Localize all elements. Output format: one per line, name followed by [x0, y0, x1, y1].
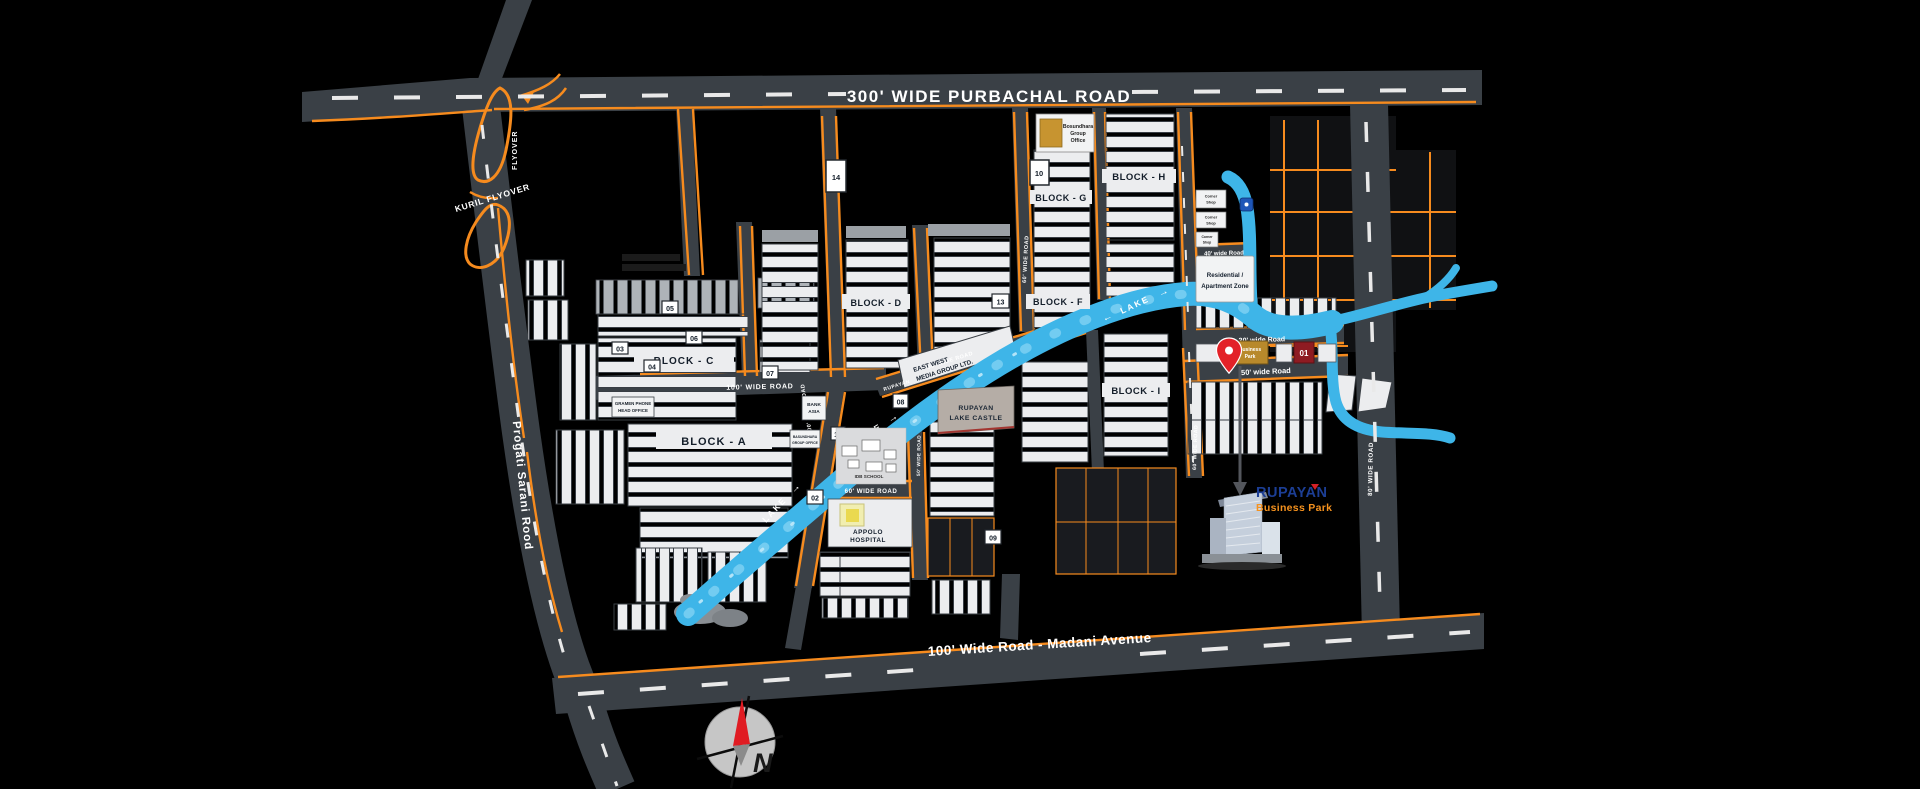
compass: N [697, 696, 783, 788]
block-i-label: BLOCK - I [1111, 386, 1160, 397]
bosundhara-label: Office [1071, 138, 1086, 144]
madani-stub-a [785, 586, 812, 650]
residential-zone: Residential / Apartment Zone [1196, 256, 1254, 302]
plot-08: 08 [897, 400, 905, 407]
block-c-label: BLOCK - C [654, 356, 715, 367]
madani-stub-b [1000, 574, 1020, 640]
bank-asia-label: BANK [807, 402, 821, 408]
residential-label: Residential / [1207, 272, 1244, 279]
hospital-label: APPOLO [853, 529, 883, 536]
purbachal-road-label: 300' WIDE PURBACHAL ROAD [847, 87, 1131, 106]
bosundhara-office: Bosundhara Group Office [1036, 114, 1094, 152]
corner-shops: Corner Shop Corner Shop Corner Shop [1196, 190, 1226, 247]
flyover-label: FLYOVER [512, 131, 519, 170]
rupayan-logo: RUPAYAN Business Park [1256, 484, 1332, 514]
basundhara-small-office: BASUNDHARA GROUP OFFICE [790, 430, 820, 448]
block-d-label: BLOCK - D [851, 298, 902, 308]
gramenphone-label: HEAD OFFICE [618, 408, 648, 413]
plot-10: 10 [1035, 169, 1043, 178]
school-area: IDB SCHOOL [836, 428, 906, 484]
corner-shop-label: Shop [1206, 201, 1216, 205]
map-canvas: BLOCK - A BLOCK - C BLOCK - D BLOCK - F … [0, 0, 1920, 789]
basundhara-small-label: BASUNDHARA [793, 435, 818, 439]
location-map: BLOCK - A BLOCK - C BLOCK - D BLOCK - F … [0, 0, 1920, 789]
corner-shop-label: Corner [1201, 235, 1213, 239]
logo-tagline: Business Park [1256, 502, 1332, 514]
landmark-icon [1240, 198, 1253, 211]
bosundhara-label: Bosundhara [1063, 124, 1093, 130]
road-80v-label: 80' WIDE ROAD [1367, 442, 1375, 496]
plot-02: 02 [811, 496, 819, 503]
gramenphone-label: GRAMEN PHONE [615, 401, 651, 406]
lake-castle-label: RUPAYAN [958, 405, 993, 412]
plot-01: 01 [1300, 349, 1309, 358]
compass-north-icon: N [753, 748, 773, 778]
plot-03: 03 [616, 347, 624, 354]
bosundhara-gold-marker [1040, 119, 1062, 147]
corner-shop-label: Corner [1205, 195, 1218, 199]
plot-09: 09 [989, 536, 997, 543]
gramenphone-office: GRAMEN PHONE HEAD OFFICE [612, 397, 654, 417]
business-park-label: Park [1245, 354, 1256, 360]
block-h-label: BLOCK - H [1112, 172, 1166, 183]
corner-shop-label: Shop [1203, 241, 1211, 245]
street-block-i-west [1086, 330, 1104, 472]
bosundhara-label: Group [1070, 131, 1086, 137]
hospital-label: HOSPITAL [850, 537, 886, 544]
plot-13: 13 [997, 300, 1005, 307]
business-park-label: Business [1239, 347, 1261, 353]
right-grid-zone-east [1396, 150, 1456, 310]
plot-06: 06 [690, 336, 698, 343]
basundhara-small-label: GROUP OFFICE [792, 441, 818, 445]
road-60h-label: 60' WIDE ROAD [845, 488, 898, 495]
residential-label: Apartment Zone [1201, 283, 1249, 290]
logo-name: RUPAYAN [1256, 485, 1327, 501]
block-g-label: BLOCK - G [1035, 193, 1087, 203]
arrow-down-icon [1233, 482, 1247, 496]
block-a-label: BLOCK - A [681, 436, 746, 448]
lake-castle-label: LAKE CASTLE [949, 415, 1002, 422]
bank-asia-label: ASIA [808, 409, 820, 415]
plot-14: 14 [832, 173, 841, 182]
plot-05: 05 [666, 306, 674, 313]
plot-04: 04 [648, 365, 656, 372]
bank-asia: BANK ASIA [802, 396, 826, 420]
school-label: IDB SCHOOL [855, 474, 884, 479]
block-f-label: BLOCK - F [1033, 297, 1083, 307]
rupayan-lake-castle: RUPAYAN LAKE CASTLE [938, 386, 1014, 434]
hospital-area: APPOLO HOSPITAL [828, 499, 912, 547]
plot-07: 07 [766, 371, 774, 378]
road-50v-label: 50' WIDE ROAD [916, 435, 923, 476]
corner-shop-label: Shop [1206, 222, 1216, 226]
corner-shop-label: Corner [1205, 216, 1218, 220]
